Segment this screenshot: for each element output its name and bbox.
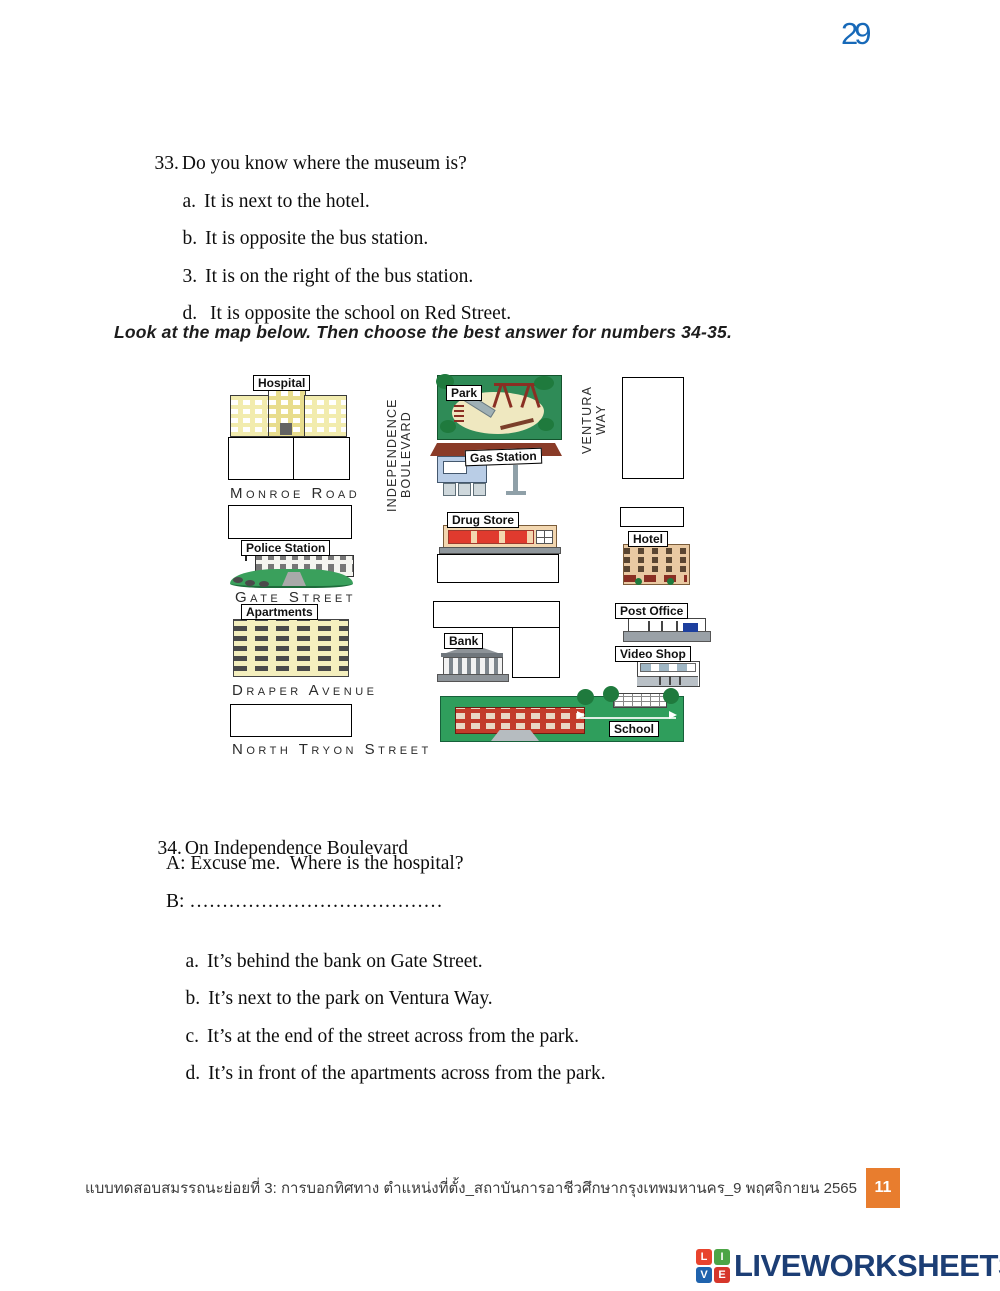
- map: Hospital Monroe Road INDEPENDENCE BOULEV…: [225, 373, 720, 765]
- logo-tile-i: I: [714, 1249, 730, 1265]
- park-label: Park: [446, 385, 482, 401]
- q34-dialogue-b-blank[interactable]: B: …………………………………: [166, 891, 443, 913]
- logo-text: LIVEWORKSHEETS: [734, 1248, 1000, 1284]
- answer-box-under-drug-store[interactable]: [437, 554, 559, 583]
- street-ventura-way: VENTURA WAY: [580, 376, 597, 464]
- apartments-label: Apartments: [241, 604, 318, 620]
- street-monroe-road: Monroe Road: [230, 485, 360, 502]
- option-label: d.: [186, 1063, 201, 1084]
- option-text: It’s in front of the apartments across f…: [208, 1063, 605, 1084]
- page-number-badge: 11: [866, 1168, 900, 1208]
- drug-store-building: [439, 525, 559, 552]
- school-building: School: [440, 696, 684, 742]
- hotel-label: Hotel: [628, 531, 668, 547]
- answer-box-bottom-left[interactable]: [230, 704, 352, 737]
- option-text: It is opposite the school on Red Street.: [205, 303, 511, 324]
- answer-box-top-right[interactable]: [622, 377, 684, 479]
- drug-store-label: Drug Store: [447, 512, 519, 528]
- apartments-building: [233, 619, 349, 677]
- option-label: d.: [183, 303, 198, 324]
- q34-option-d[interactable]: d.It’s in front of the apartments across…: [166, 1041, 606, 1107]
- answer-box-under-hospital[interactable]: [228, 437, 350, 480]
- bank-label: Bank: [444, 633, 483, 649]
- logo-tile-v: V: [696, 1267, 712, 1283]
- worksheet-page: 29 33.Do you know where the museum is? a…: [0, 0, 1000, 1291]
- gas-station-label: Gas Station: [465, 448, 542, 467]
- video-shop-label: Video Shop: [615, 646, 691, 662]
- police-station-label: Police Station: [241, 540, 330, 556]
- hotel-building: [623, 544, 690, 585]
- post-office-building: [623, 618, 711, 641]
- answer-box-above-bank[interactable]: [433, 601, 560, 628]
- park-area: Park: [437, 375, 562, 440]
- street-north-tryon-street: North Tryon Street: [232, 741, 432, 758]
- bank-building: [435, 644, 509, 682]
- school-label: School: [609, 721, 659, 737]
- instruction-text: Look at the map below. Then choose the b…: [114, 322, 732, 343]
- q34-dialogue-a: A: Excuse me. Where is the hospital?: [166, 853, 463, 875]
- post-office-label: Post Office: [615, 603, 688, 619]
- logo-tile-l: L: [696, 1249, 712, 1265]
- corner-page-number: 29: [841, 16, 867, 52]
- footer-text: แบบทดสอบสมรรถนะย่อยที่ 3: การบอกทิศทาง ต…: [85, 1176, 857, 1200]
- street-draper-avenue: Draper Avenue: [232, 682, 377, 699]
- hospital-building: [230, 389, 345, 435]
- video-shop-building: [637, 661, 700, 686]
- answer-box-above-hotel[interactable]: [620, 507, 684, 527]
- street-independence-boulevard: INDEPENDENCE BOULEVARD: [385, 375, 402, 535]
- hospital-label: Hospital: [253, 375, 310, 391]
- liveworksheets-logo[interactable]: L I V E LIVEWORKSHEETS: [696, 1248, 1000, 1284]
- logo-tile-e: E: [714, 1267, 730, 1283]
- logo-tiles-icon: L I V E: [696, 1249, 730, 1283]
- answer-box-left-middle[interactable]: [228, 505, 352, 539]
